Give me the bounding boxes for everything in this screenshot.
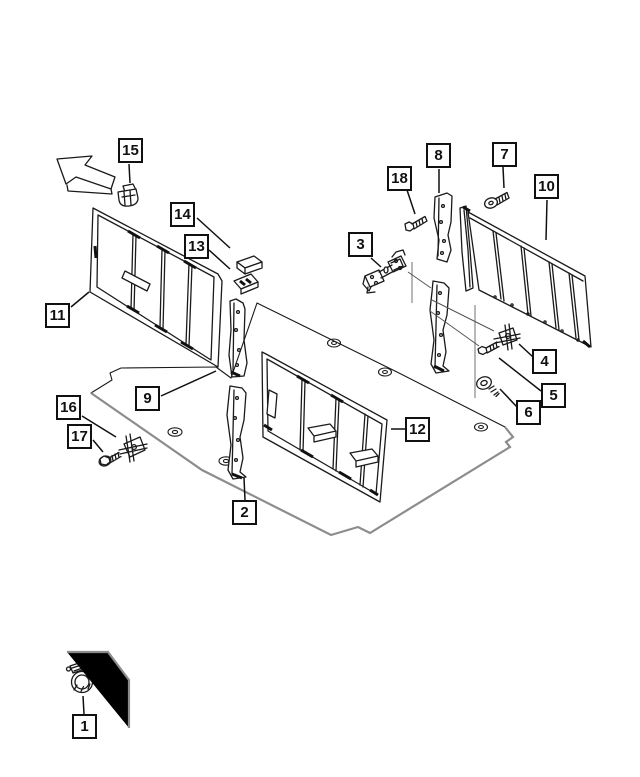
pillar-bracket-icon [434,193,452,262]
callout-7[interactable]: 7 [492,142,517,167]
callout-15[interactable]: 15 [118,138,143,163]
callout-5[interactable]: 5 [541,383,566,408]
callout-9[interactable]: 9 [135,386,160,411]
callout-4[interactable]: 4 [532,349,557,374]
callout-8[interactable]: 8 [426,143,451,168]
callout-14[interactable]: 14 [170,202,195,227]
push-pin-icon [475,375,499,397]
callout-1[interactable]: 1 [72,714,97,739]
callout-16[interactable]: 16 [56,395,81,420]
callout-18[interactable]: 18 [387,166,412,191]
callout-10[interactable]: 10 [534,174,559,199]
callout-12[interactable]: 12 [405,417,430,442]
screw-icon [478,342,499,355]
arrow-up-left-icon [57,156,115,194]
callout-6[interactable]: 6 [516,400,541,425]
callout-2[interactable]: 2 [232,500,257,525]
callout-17[interactable]: 17 [67,424,92,449]
retainer-clip-icon [119,434,147,462]
callout-13[interactable]: 13 [184,234,209,259]
pillar-bracket-icon [430,281,449,373]
callout-3[interactable]: 3 [348,232,373,257]
parts-diagram-page: 1 2 3 4 5 6 7 8 9 10 11 12 13 14 15 16 1… [0,0,640,777]
retainer-clip-icon [494,324,520,350]
callout-11[interactable]: 11 [45,303,70,328]
retainer-clip-icon [118,184,138,206]
slatted-panel-icon [262,352,387,502]
hex-bolt-icon [405,217,427,232]
screw-icon [98,453,121,468]
flat-head-screw-icon [483,193,509,210]
slatted-panel-icon [90,208,222,367]
spacer-clip-icon [234,274,258,294]
slatted-panel-icon [460,206,591,347]
pillar-bracket-icon [227,386,246,479]
spacer-block-icon [237,256,262,274]
